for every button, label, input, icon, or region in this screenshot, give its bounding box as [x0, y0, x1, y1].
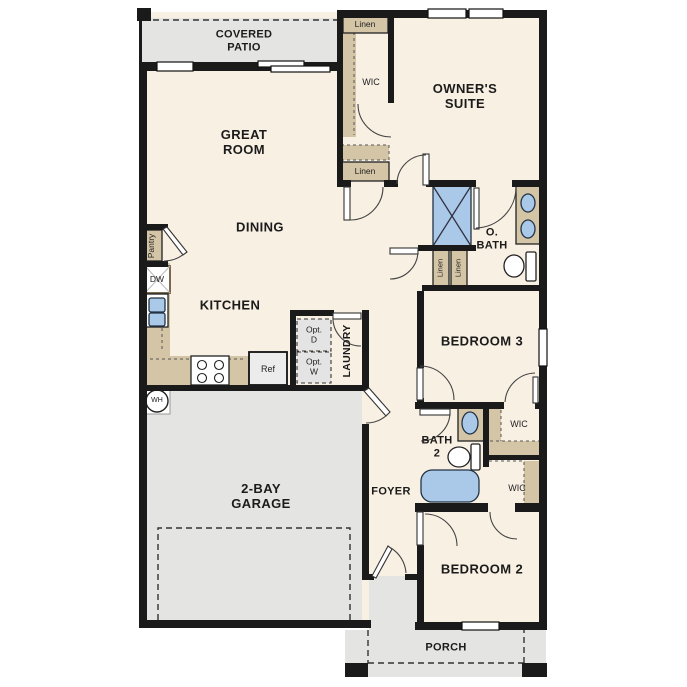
- closet-label-wic-owner: WIC: [362, 77, 380, 87]
- appliance-label-refrigerator: Ref: [261, 364, 275, 374]
- entry-walkway-slab: [369, 576, 417, 630]
- room-label-garage: 2-BAY GARAGE: [231, 482, 290, 512]
- closet-label-linen-bath-1: Linen: [437, 259, 446, 277]
- bedroom3-window: [539, 329, 547, 366]
- patio-slider-inner: [271, 66, 330, 72]
- closet-label-pantry: Pantry: [147, 234, 157, 259]
- room-label-bedroom-3: BEDROOM 3: [441, 335, 523, 350]
- kitchen-sink-icon: [146, 294, 168, 327]
- shower-icon: [433, 186, 471, 246]
- bath2-sink-icon: [458, 407, 484, 441]
- room-label-great-room: GREAT ROOM: [221, 128, 268, 158]
- wic-bed3-shelf: [489, 441, 546, 456]
- appliance-label-water-heater: WH: [151, 397, 163, 405]
- porch-post-left: [345, 663, 368, 677]
- appliance-label-opt-dryer: Opt. D: [306, 325, 322, 344]
- stove-icon: [191, 356, 229, 385]
- room-label-owners-bath: O. BATH: [477, 226, 508, 251]
- porch-post-right: [522, 663, 547, 677]
- room-label-owners-suite: OWNER'S SUITE: [433, 82, 497, 112]
- room-label-dining: DINING: [236, 221, 284, 236]
- appliance-label-dishwasher: DW: [150, 275, 164, 285]
- room-label-porch: PORCH: [425, 642, 466, 655]
- owners-suite-window-2: [469, 9, 503, 18]
- bathtub-icon: [421, 470, 479, 502]
- bedroom2-window: [462, 622, 499, 630]
- floor-plan: COVERED PATIO GREAT ROOM DINING KITCHEN …: [0, 0, 687, 687]
- room-label-covered-patio: COVERED PATIO: [216, 28, 273, 53]
- closet-label-linen-hall: Linen: [355, 167, 376, 177]
- closet-label-wic-bed2: WIC: [508, 483, 526, 493]
- owners-suite-window-1: [428, 9, 466, 18]
- room-label-bedroom-2: BEDROOM 2: [441, 563, 523, 578]
- closet-label-wic-bed3: WIC: [510, 419, 528, 429]
- room-label-foyer: FOYER: [371, 486, 410, 499]
- wic-bed2-rod: [524, 461, 539, 505]
- room-label-laundry: LAUNDRY: [342, 324, 354, 377]
- room-label-bath-2: BATH 2: [422, 434, 453, 459]
- great-room-window: [157, 62, 193, 71]
- closet-label-linen-top: Linen: [355, 20, 376, 30]
- hall-shelf: [341, 145, 389, 160]
- room-label-kitchen: KITCHEN: [200, 299, 261, 314]
- wic-bed3-rod: [489, 409, 501, 442]
- wic-owner-rod: [343, 18, 356, 137]
- closet-label-linen-bath-2: Linen: [455, 259, 464, 277]
- owners-bath-vanity-icon: [516, 186, 540, 244]
- appliance-label-opt-washer: Opt. W: [306, 357, 322, 376]
